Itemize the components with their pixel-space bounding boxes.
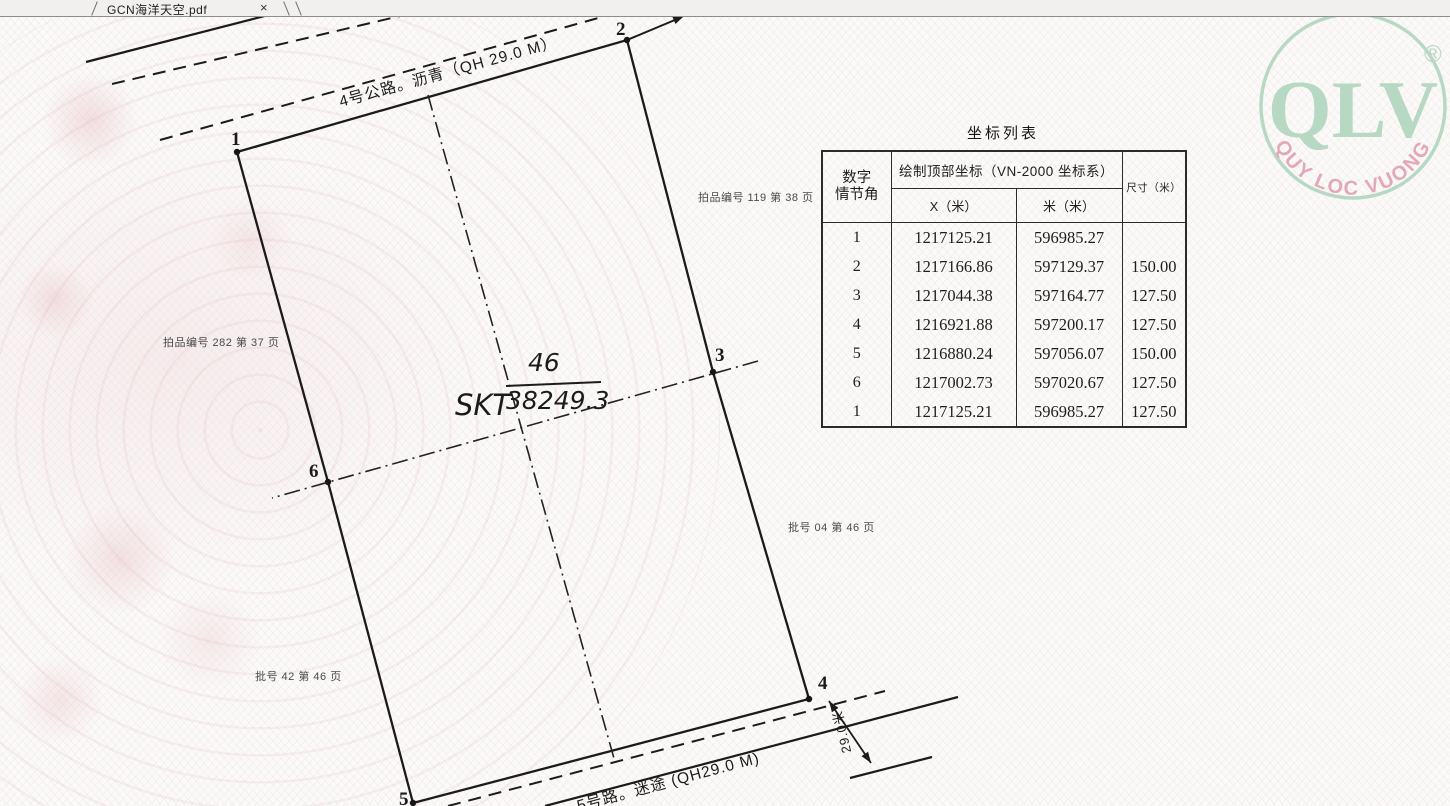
- table-row: 1 1217125.21 596985.27 127.50: [822, 397, 1186, 427]
- cell-x: 1216880.24: [891, 339, 1016, 368]
- cell-size: 150.00: [1122, 252, 1186, 281]
- annotation-batch-04: 批号 04 第 46 页: [788, 519, 875, 535]
- cell-x: 1217044.38: [891, 281, 1016, 310]
- cell-size: [1122, 223, 1186, 253]
- cell-x: 1217002.73: [891, 368, 1016, 397]
- tab-edge-right: [283, 1, 290, 15]
- cell-point: 3: [822, 281, 891, 310]
- table-row: 4 1216921.88 597200.17 127.50: [822, 310, 1186, 339]
- table-row: 2 1217166.86 597129.37 150.00: [822, 252, 1186, 281]
- cell-size: 127.50: [1122, 368, 1186, 397]
- cell-point: 1: [822, 397, 891, 427]
- vertex-label-1: 1: [231, 129, 241, 151]
- cell-x: 1216921.88: [891, 310, 1016, 339]
- cell-size: 127.50: [1122, 397, 1186, 427]
- cell-x: 1217125.21: [891, 397, 1016, 427]
- table-row: 6 1217002.73 597020.67 127.50: [822, 368, 1186, 397]
- coordinate-table-block: 坐标列表 数字 情节角 绘制顶部坐标（VN-2000 坐标系） 尺寸（米） X（…: [821, 122, 1185, 428]
- cell-size: 127.50: [1122, 310, 1186, 339]
- cell-y: 596985.27: [1016, 223, 1122, 253]
- cell-point: 6: [822, 368, 891, 397]
- vertex-label-6: 6: [309, 461, 319, 483]
- cell-point: 4: [822, 310, 891, 339]
- vertex-label-4: 4: [818, 673, 828, 695]
- header-size: 尺寸（米）: [1122, 151, 1186, 223]
- cell-y: 596985.27: [1016, 397, 1122, 427]
- cell-y: 597020.67: [1016, 368, 1122, 397]
- table-title: 坐标列表: [821, 122, 1185, 143]
- tab-bar: GCN海洋天空.pdf ×: [0, 0, 1450, 17]
- cell-point: 1: [822, 223, 891, 253]
- table-row: 3 1217044.38 597164.77 127.50: [822, 281, 1186, 310]
- cell-y: 597200.17: [1016, 310, 1122, 339]
- tab-edge-left: [91, 1, 98, 15]
- header-point-number: 数字 情节角: [822, 151, 891, 223]
- cell-y: 597129.37: [1016, 252, 1122, 281]
- parcel-number: 46: [528, 348, 560, 377]
- cell-point: 5: [822, 339, 891, 368]
- pdf-tab[interactable]: GCN海洋天空.pdf ×: [88, 0, 300, 16]
- vertex-label-5: 5: [399, 789, 409, 806]
- cell-size: 150.00: [1122, 339, 1186, 368]
- coordinate-table: 数字 情节角 绘制顶部坐标（VN-2000 坐标系） 尺寸（米） X（米） 米（…: [821, 150, 1187, 428]
- annotation-lot-119: 拍品编号 119 第 38 页: [698, 189, 814, 205]
- header-coord-group: 绘制顶部坐标（VN-2000 坐标系）: [891, 151, 1122, 189]
- cell-point: 2: [822, 252, 891, 281]
- tab-close-button[interactable]: ×: [260, 0, 268, 15]
- table-row: 5 1216880.24 597056.07 150.00: [822, 339, 1186, 368]
- vertex-label-2: 2: [616, 19, 626, 41]
- cell-y: 597164.77: [1016, 281, 1122, 310]
- parcel-prefix: SKT: [455, 388, 510, 422]
- table-row: 1 1217125.21 596985.27: [822, 223, 1186, 253]
- header-point-line2: 情节角: [823, 187, 891, 204]
- pdf-viewer-window: 1 2 3 4 5 6 4号公路。沥青（QH 29.0 M） 5号路。迷途 (Q…: [0, 0, 1450, 806]
- tab-edge-right-2: [295, 1, 302, 15]
- vertex-label-3: 3: [715, 345, 725, 367]
- cell-x: 1217125.21: [891, 223, 1016, 253]
- cell-y: 597056.07: [1016, 339, 1122, 368]
- header-point-line1: 数字: [823, 170, 891, 187]
- header-y: 米（米）: [1016, 189, 1122, 223]
- cell-size: 127.50: [1122, 281, 1186, 310]
- parcel-area: 38249.3: [506, 386, 609, 415]
- tab-title: GCN海洋天空.pdf: [107, 1, 207, 18]
- cell-x: 1217166.86: [891, 252, 1016, 281]
- header-x: X（米）: [891, 189, 1016, 223]
- annotation-lot-282: 拍品编号 282 第 37 页: [163, 334, 279, 350]
- annotation-batch-42: 批号 42 第 46 页: [255, 668, 342, 684]
